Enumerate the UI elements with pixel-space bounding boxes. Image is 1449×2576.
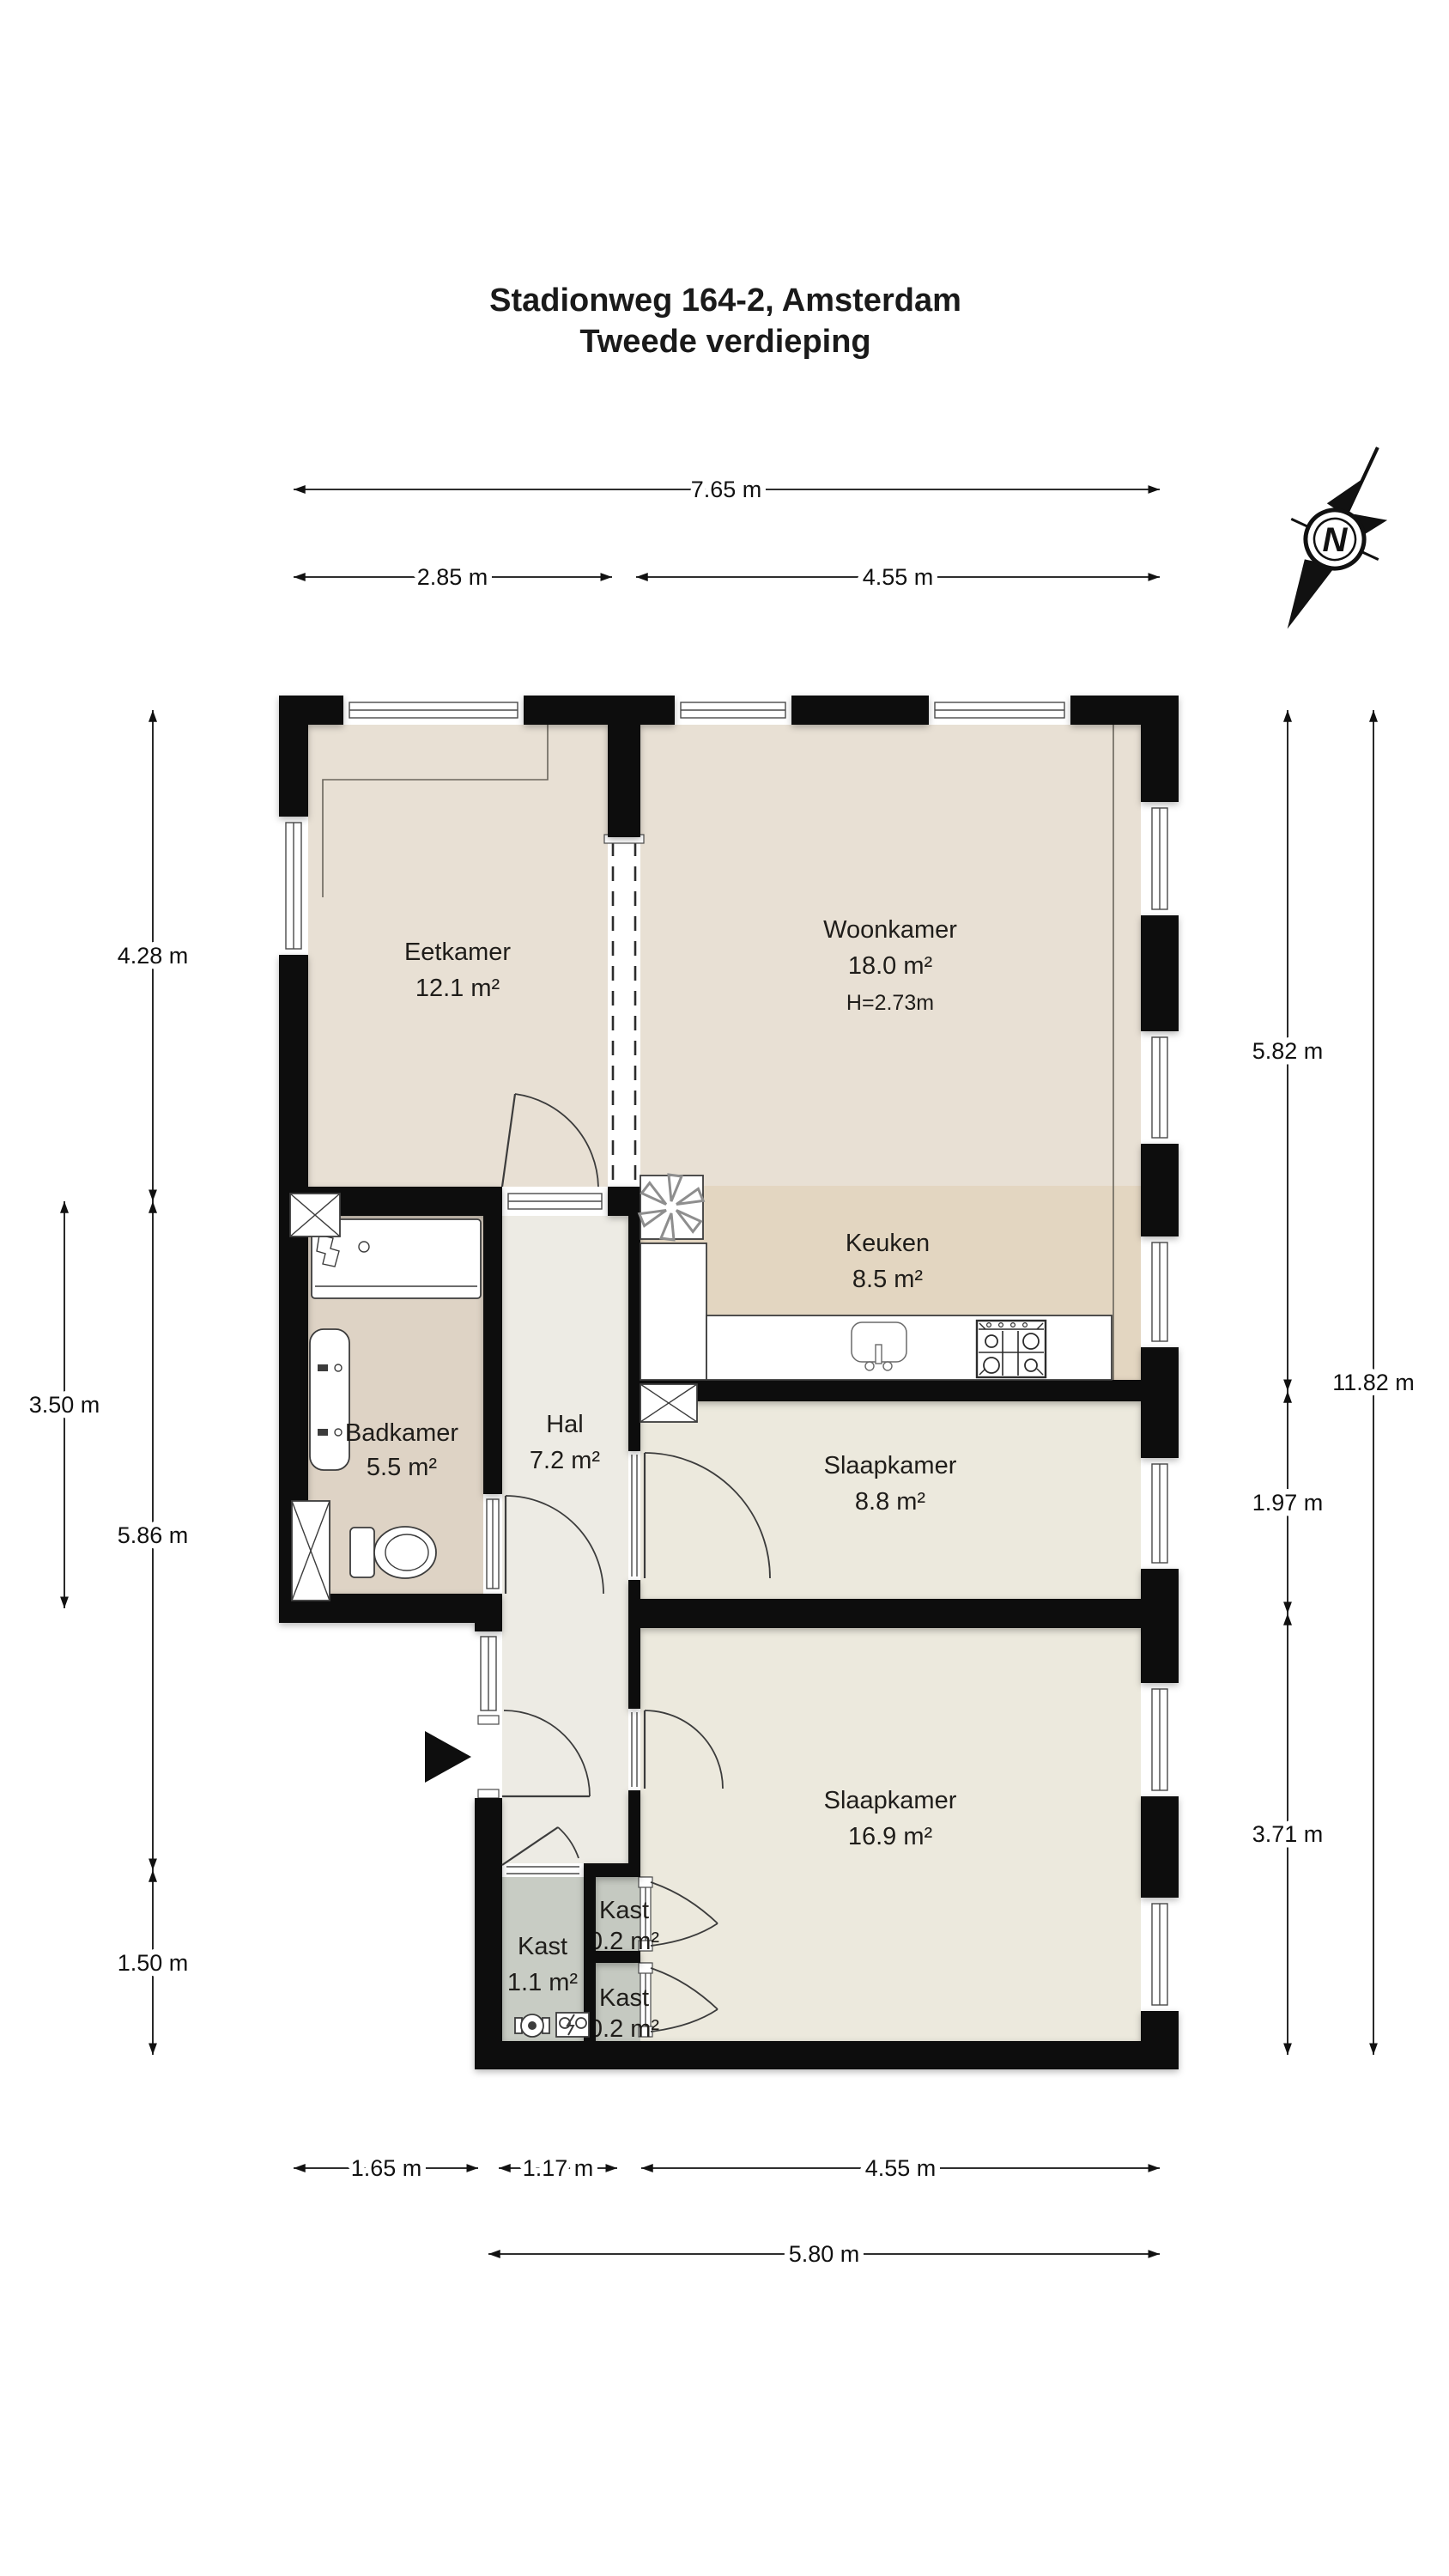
dim-left-upper: 4.28 m [118, 710, 189, 1201]
entry-door-jamb-bottom [478, 1789, 499, 1798]
svg-text:Hal: Hal [546, 1411, 584, 1438]
title-line-2: Tweede verdieping [579, 324, 870, 360]
svg-text:4.55 m: 4.55 m [863, 564, 934, 590]
entry-door-jamb-top [478, 1716, 499, 1724]
shaft-bottom-icon [292, 1501, 330, 1601]
svg-text:18.0 m²: 18.0 m² [848, 952, 933, 980]
stove [977, 1321, 1046, 1377]
shaft-top-icon [290, 1194, 340, 1236]
svg-text:0.2 m²: 0.2 m² [589, 2015, 660, 2043]
svg-text:1.50 m: 1.50 m [118, 1950, 189, 1976]
svg-text:Eetkamer: Eetkamer [404, 939, 511, 966]
svg-text:5.5 m²: 5.5 m² [367, 1454, 438, 1481]
window-woonkamer-right-1 [1141, 802, 1179, 915]
svg-text:Kast: Kast [518, 1933, 567, 1960]
svg-text:1.97 m: 1.97 m [1252, 1490, 1324, 1516]
entry-door-gap [475, 1716, 502, 1798]
window-woonkamer-top-1 [675, 696, 791, 725]
washbasin [310, 1329, 349, 1470]
entrance-arrow-icon [425, 1731, 471, 1783]
page-title: Stadionweg 164-2, Amsterdam Tweede verdi… [489, 283, 961, 360]
svg-text:8.5 m²: 8.5 m² [852, 1266, 924, 1293]
kitchen-cabinet [640, 1243, 706, 1380]
dim-top-total: 7.65 m [294, 477, 1160, 502]
svg-text:Slaapkamer: Slaapkamer [824, 1787, 957, 1814]
tap-icon [318, 1429, 328, 1436]
kitchen-counter [706, 1315, 1112, 1380]
dim-left-lower: 1.50 m [118, 1870, 189, 2055]
dim-left-outer: 3.50 m [29, 1201, 100, 1608]
doorframe-slaapkamer-2 [628, 1709, 640, 1790]
doorframe-slaapkamer-1 [628, 1451, 640, 1580]
dim-bottom-left: 1.65 m [294, 2155, 478, 2181]
window-slaapkamer2-right-1 [1141, 1683, 1179, 1796]
window-entry-sidelight [475, 1631, 502, 1716]
svg-text:11.82 m: 11.82 m [1332, 1370, 1415, 1395]
dim-bottom-hall: 1.17 m [499, 2155, 617, 2181]
svg-text:3.71 m: 3.71 m [1252, 1821, 1324, 1847]
svg-text:5.80 m: 5.80 m [789, 2241, 860, 2267]
svg-text:1.17 m: 1.17 m [523, 2155, 594, 2181]
svg-text:Badkamer: Badkamer [345, 1419, 459, 1447]
dim-bottom-total: 5.80 m [488, 2241, 1160, 2267]
dim-right-lower: 3.71 m [1252, 1613, 1324, 2055]
toilet [350, 1527, 436, 1578]
svg-text:Keuken: Keuken [846, 1230, 930, 1257]
doorframe-eetkamer-hal [502, 1187, 608, 1216]
floor-hal [502, 1216, 628, 1863]
doorframe-badkamer [483, 1494, 502, 1594]
north-arrow-icon: N [1248, 427, 1421, 651]
floorplan-canvas: Stadionweg 164-2, Amsterdam Tweede verdi… [0, 0, 1449, 2576]
svg-text:Woonkamer: Woonkamer [823, 916, 957, 944]
svg-text:1.65 m: 1.65 m [351, 2155, 422, 2181]
svg-text:3.50 m: 3.50 m [29, 1392, 100, 1418]
electric-meter-icon [556, 2013, 589, 2037]
dim-left-middle: 5.86 m [118, 1201, 189, 1870]
ventilation-fan-icon [638, 1175, 705, 1240]
svg-text:12.1 m²: 12.1 m² [415, 975, 500, 1002]
dim-right-middle: 1.97 m [1252, 1391, 1324, 1613]
tap-icon [318, 1364, 328, 1371]
window-keuken-right [1141, 1236, 1179, 1347]
shaft-keuken-icon [640, 1384, 697, 1422]
title-line-1: Stadionweg 164-2, Amsterdam [489, 283, 961, 319]
svg-text:Kast: Kast [599, 1897, 649, 1924]
water-meter-icon [515, 2014, 549, 2037]
window-eetkamer-top [343, 696, 524, 725]
svg-text:Kast: Kast [599, 1984, 649, 2012]
svg-text:Slaapkamer: Slaapkamer [824, 1452, 957, 1479]
window-slaapkamer2-right-2 [1141, 1898, 1179, 2011]
svg-text:H=2.73m: H=2.73m [846, 991, 934, 1015]
doorframe-kast-hal [502, 1863, 584, 1877]
svg-text:2.85 m: 2.85 m [417, 564, 488, 590]
compass-north-label: N [1323, 521, 1349, 559]
dim-right-upper: 5.82 m [1252, 710, 1324, 1391]
svg-text:8.8 m²: 8.8 m² [855, 1488, 926, 1516]
svg-text:5.82 m: 5.82 m [1252, 1038, 1324, 1064]
sliding-opening [604, 835, 644, 1196]
svg-text:7.2 m²: 7.2 m² [530, 1447, 601, 1474]
window-slaapkamer1-right [1141, 1458, 1179, 1569]
floorplan-page: Stadionweg 164-2, Amsterdam Tweede verdi… [0, 0, 1449, 2576]
svg-text:4.55 m: 4.55 m [865, 2155, 937, 2181]
dim-top-right: 4.55 m [636, 564, 1160, 590]
dim-right-total: 11.82 m [1332, 710, 1415, 2055]
window-woonkamer-top-2 [929, 696, 1070, 725]
svg-text:1.1 m²: 1.1 m² [507, 1969, 579, 1996]
dim-top-left: 2.85 m [294, 564, 612, 590]
svg-text:5.86 m: 5.86 m [118, 1522, 189, 1548]
window-eetkamer-left [279, 817, 308, 955]
svg-text:16.9 m²: 16.9 m² [848, 1823, 933, 1850]
dim-bottom-right: 4.55 m [641, 2155, 1160, 2181]
window-woonkamer-right-2 [1141, 1031, 1179, 1144]
svg-text:4.28 m: 4.28 m [118, 943, 189, 969]
svg-text:7.65 m: 7.65 m [691, 477, 762, 502]
